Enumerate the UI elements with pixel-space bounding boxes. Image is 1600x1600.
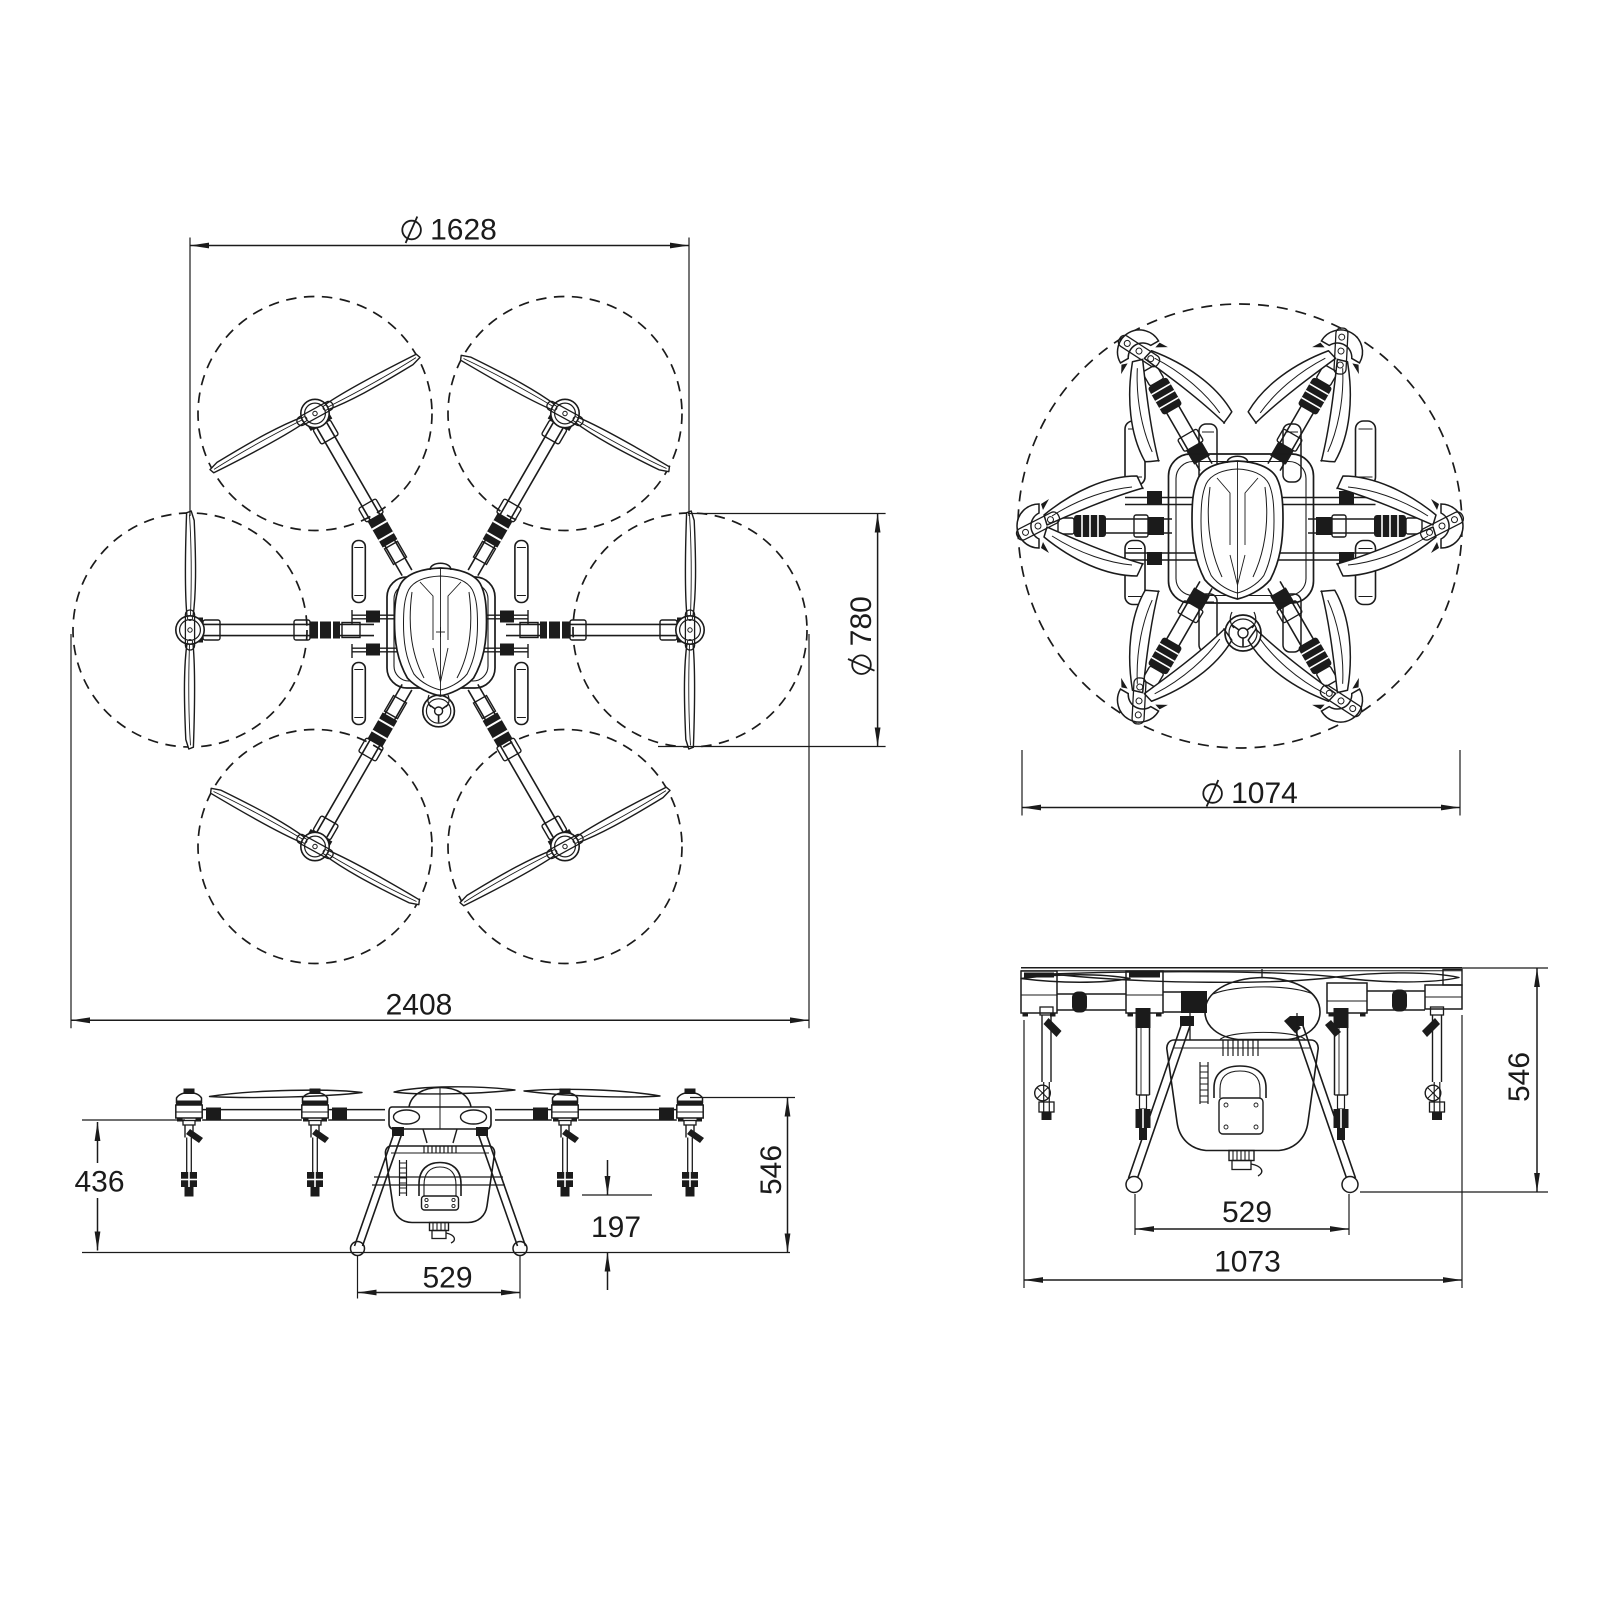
svg-text:1074: 1074	[1231, 777, 1298, 810]
svg-text:197: 197	[591, 1211, 641, 1244]
svg-text:529: 529	[1222, 1196, 1272, 1229]
svg-text:1628: 1628	[430, 214, 497, 247]
svg-text:546: 546	[755, 1145, 788, 1195]
svg-text:529: 529	[422, 1262, 472, 1295]
svg-text:436: 436	[74, 1166, 124, 1199]
svg-text:1073: 1073	[1214, 1246, 1281, 1279]
svg-text:2408: 2408	[386, 989, 453, 1022]
svg-text:546: 546	[1503, 1052, 1536, 1102]
svg-text:780: 780	[845, 596, 878, 646]
